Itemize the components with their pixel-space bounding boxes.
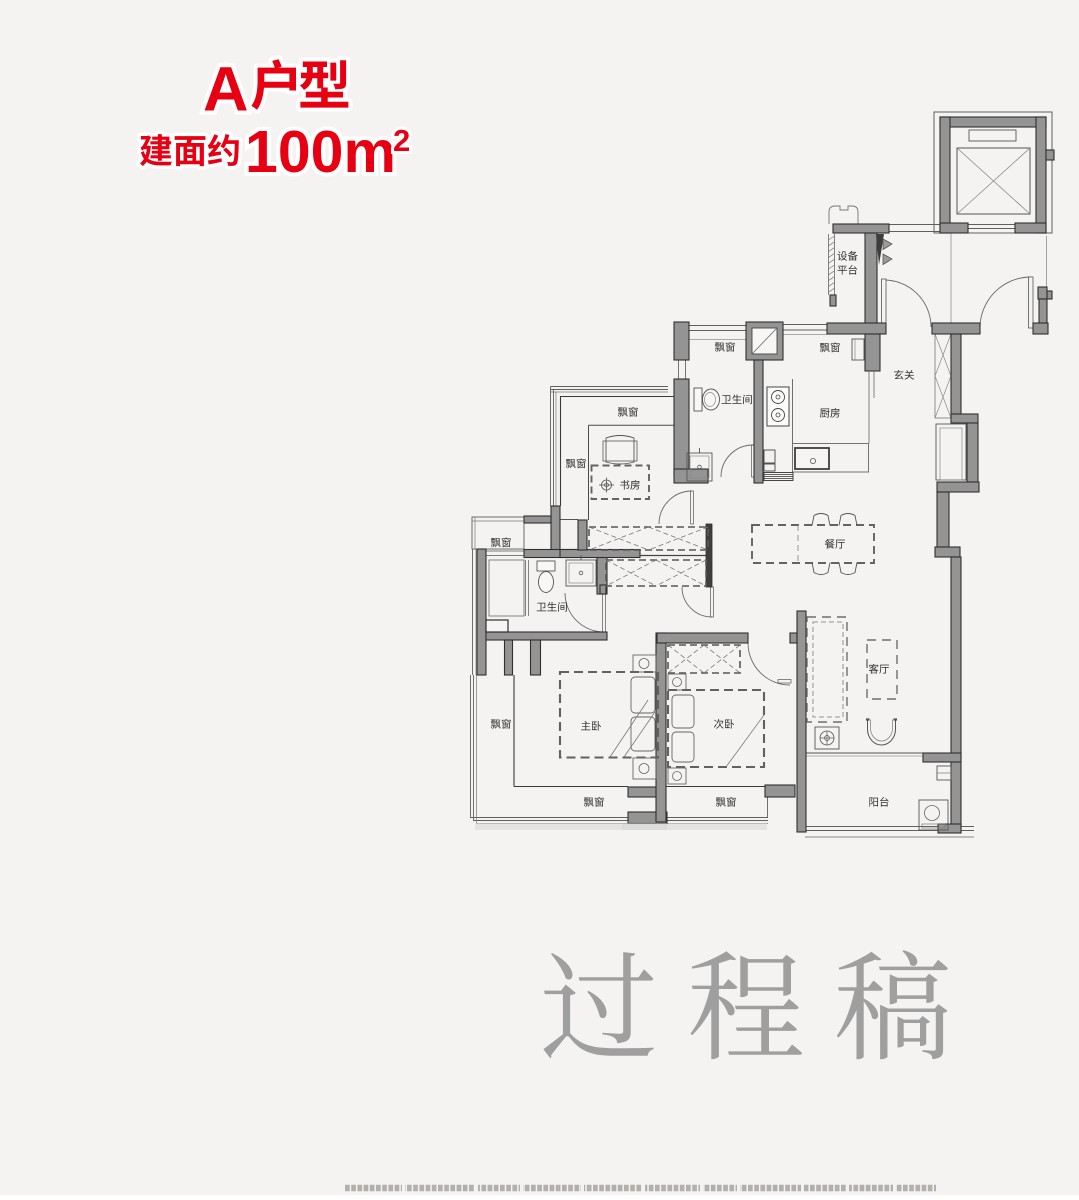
- svg-text:A: A: [203, 55, 249, 125]
- svg-text:2: 2: [393, 123, 410, 158]
- svg-text:100m: 100m: [245, 119, 396, 185]
